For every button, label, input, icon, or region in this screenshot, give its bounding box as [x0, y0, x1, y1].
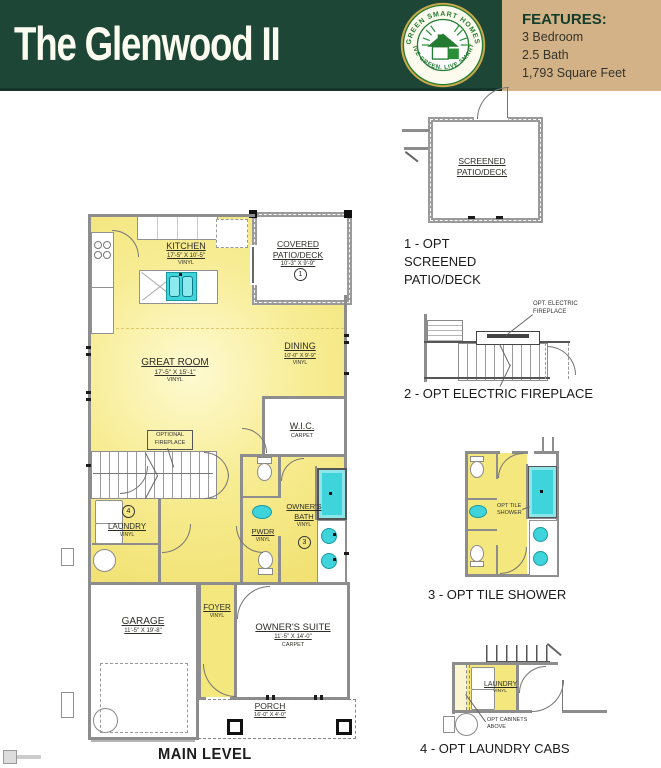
opt1-caption: 1 - OPT SCREENED PATIO/DECK — [404, 235, 510, 290]
opt2-caption: 2 - OPT ELECTRIC FIREPLACE — [404, 385, 594, 403]
pedestal-sink — [252, 505, 272, 519]
wall — [278, 454, 281, 498]
pwdr-label: PWDR VINYL — [246, 527, 280, 543]
window-mark — [344, 334, 349, 337]
wall — [347, 582, 350, 700]
kitchen-counter — [91, 287, 114, 334]
opt1-door-arc — [477, 87, 509, 119]
window-mark — [86, 464, 91, 467]
opt4-door-leaf — [562, 680, 563, 711]
opt4-door-arc — [532, 680, 564, 712]
dining-label: DINING 10'-0" X 9'-9" VINYL — [272, 341, 328, 366]
wall — [496, 545, 498, 575]
washer-icon — [95, 500, 123, 524]
wic-label: W.I.C. CARPET — [278, 421, 326, 440]
wall — [242, 496, 278, 498]
porch-post — [336, 719, 352, 735]
wall — [240, 454, 344, 457]
opt1-door-leaf — [507, 87, 508, 118]
kitchen-counter — [91, 232, 114, 289]
wall — [465, 451, 468, 577]
toilet-icon — [258, 568, 273, 575]
opt2-door-arc — [547, 346, 576, 375]
water-heater — [93, 549, 116, 572]
door-jamb-tick — [468, 216, 475, 219]
utility-box — [443, 716, 455, 733]
opt4-callout: OPT CABINETS ABOVE — [487, 717, 542, 731]
wall — [516, 710, 532, 713]
vanity-sink — [321, 528, 337, 544]
feature-bath: 2.5 Bath — [522, 48, 569, 62]
watermark-text-smudge — [17, 755, 41, 759]
wall — [465, 451, 500, 454]
vanity-sink — [533, 527, 548, 542]
toilet-icon — [258, 551, 273, 569]
window-mark — [314, 695, 317, 700]
door-jamb-tick — [496, 216, 503, 219]
opt3-caption: 3 - OPT TILE SHOWER — [428, 586, 588, 604]
window-mark — [86, 353, 91, 356]
opt2-wall-line — [424, 377, 550, 379]
wall — [402, 129, 430, 132]
garage-parking-area — [100, 663, 188, 733]
wall — [452, 710, 518, 713]
features-panel: FEATURES: 3 Bedroom 2.5 Bath 1,793 Squar… — [502, 0, 661, 91]
window-mark — [344, 552, 349, 555]
feature-bedrooms: 3 Bedroom — [522, 30, 583, 44]
opt4-caption: 4 - OPT LAUNDRY CABS — [420, 740, 595, 758]
toilet-icon — [470, 545, 484, 562]
garage-door — [91, 740, 195, 742]
faucet-icon — [333, 533, 336, 536]
foyer-label: FOYER VINYL — [198, 603, 236, 620]
covered-patio-label: COVERED PATIO/DECK 10'-3" X 9'-9" — [259, 239, 337, 269]
flyer-page: The Glenwood II FEATURES: 3 Bedroom 2.5 … — [0, 0, 661, 768]
option-marker-laundry: 4 — [122, 505, 135, 518]
vanity-sink — [533, 551, 548, 566]
green-smart-homes-logo: GREEN SMART HOMES LIVE GREEN. LIVE SMART… — [399, 1, 487, 89]
toilet-icon — [470, 561, 484, 567]
window-mark — [320, 695, 323, 700]
main-level-caption: MAIN LEVEL — [158, 746, 252, 764]
wall — [467, 498, 497, 500]
laundry-label: LAUNDRY VINYL — [100, 522, 154, 539]
utility-box — [61, 692, 74, 718]
opt4-stairs — [486, 645, 550, 663]
opt2-jamb-dash — [545, 343, 546, 379]
owners-suite-door-arc — [237, 586, 270, 619]
faucet-icon — [333, 558, 336, 561]
opt4-room-label: LAUNDRY VINYL — [484, 680, 516, 695]
window-mark — [266, 695, 269, 700]
stove-burner-icon — [103, 251, 111, 259]
pedestal-sink — [469, 505, 487, 518]
patio-slider-door — [252, 247, 254, 283]
window-mark — [272, 695, 275, 700]
shower-drain-icon — [540, 490, 543, 493]
owners-suite-label: OWNER'S SUITE 11'-5" X 14'-0" CARPET — [250, 622, 336, 649]
stove-burner-icon — [103, 241, 111, 249]
wall — [404, 147, 428, 150]
wall — [534, 451, 558, 454]
kitchen-counter — [137, 216, 218, 240]
faucet-icon — [179, 273, 182, 276]
patio-post — [344, 210, 352, 218]
wall — [552, 437, 554, 451]
wall — [542, 437, 544, 451]
great-room-label: GREAT ROOM 17'-5" X 15'-1" VINYL — [130, 356, 220, 385]
sink-basin — [182, 276, 193, 297]
wall — [158, 493, 161, 582]
opt2-fireplace-insert — [487, 334, 529, 338]
porch-post — [227, 719, 243, 735]
owners-bath-label: OWNER'S BATH VINYL — [282, 502, 326, 528]
window-mark — [86, 391, 91, 394]
ceiling-break-line — [91, 328, 344, 329]
wall — [198, 582, 201, 700]
wall — [88, 582, 350, 585]
stairs — [91, 451, 217, 499]
toilet-icon — [257, 463, 272, 481]
wall-break-tick — [405, 151, 419, 162]
water-heater — [455, 713, 478, 736]
stove-burner-icon — [94, 241, 102, 249]
opt1-room-label: SCREENED PATIO/DECK — [450, 156, 514, 178]
wall — [562, 710, 607, 713]
option-marker-owners-bath: 3 — [298, 536, 311, 549]
window-mark — [344, 341, 349, 344]
shower-drain-icon — [329, 492, 332, 495]
toilet-icon — [470, 461, 484, 478]
watermark-logo — [3, 750, 17, 764]
stairs-center-rail — [93, 473, 213, 474]
window-mark — [86, 346, 91, 349]
garage-label: GARAGE 11'-5" X 19'-8" — [103, 615, 183, 636]
optional-fireplace-label: OPTIONAL FIREPLACE — [147, 430, 193, 450]
window-mark — [344, 372, 349, 375]
opt3-callout: OPT TILE SHOWER — [497, 503, 525, 517]
kitchen-label: KITCHEN 17'-5" X 10'-5" VINYL — [150, 241, 222, 268]
sink-basin — [169, 276, 180, 297]
page-title: The Glenwood II — [14, 12, 280, 76]
feature-sqft: 1,793 Square Feet — [522, 66, 626, 80]
opt4-cabinet-dash-line — [469, 665, 470, 710]
window-mark — [86, 398, 91, 401]
utility-box — [61, 548, 74, 566]
stove-burner-icon — [94, 251, 102, 259]
option-marker-screened-patio: 1 — [294, 268, 307, 281]
wall — [467, 529, 497, 531]
wall — [264, 396, 344, 399]
wall — [240, 454, 243, 582]
opt2-wall-section — [427, 320, 463, 342]
opt4-cabinet-column — [455, 665, 467, 710]
vanity-sink — [321, 553, 337, 569]
porch-label: PORCH 16'-0" X 4'-0" — [235, 701, 305, 719]
features-heading: FEATURES: — [522, 11, 607, 28]
opt2-callout: OPT. ELECTRIC FIREPLACE — [533, 301, 585, 316]
